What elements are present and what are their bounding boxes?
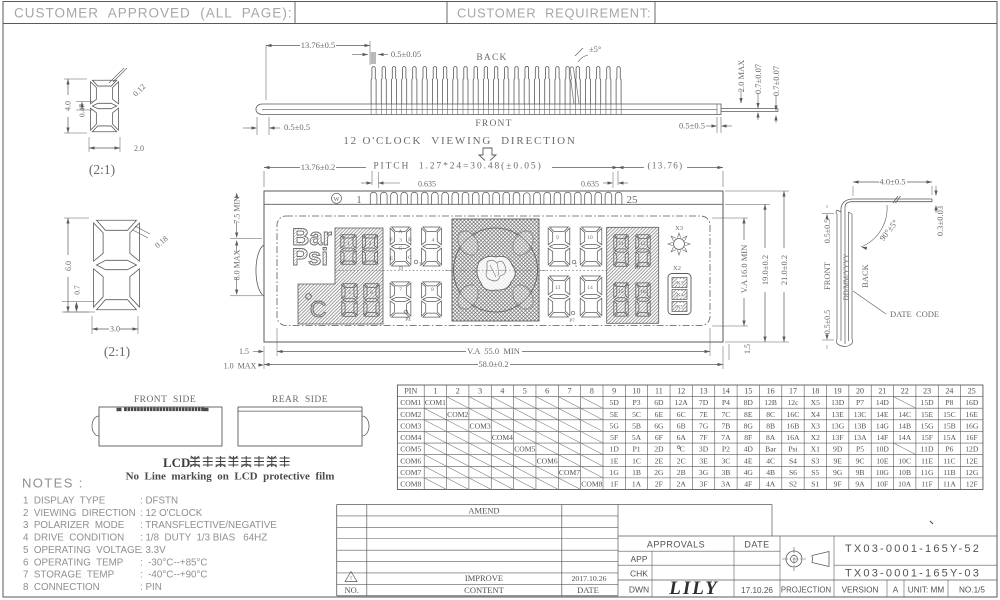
svg-text:12E: 12E [966, 456, 979, 465]
svg-text:P4: P4 [722, 398, 730, 407]
svg-text:21: 21 [878, 387, 886, 396]
svg-text:COM2: COM2 [447, 410, 468, 419]
svg-text:8B: 8B [766, 421, 775, 430]
svg-text:24: 24 [945, 387, 953, 396]
svg-text:NO.: NO. [344, 585, 358, 595]
svg-text:8E: 8E [744, 410, 753, 419]
svg-text:8A: 8A [766, 433, 776, 442]
svg-text:3F: 3F [700, 479, 708, 488]
svg-text:16F: 16F [966, 433, 978, 442]
svg-text:12 O'CLOCK VIEWING DIRECTION: 12 O'CLOCK VIEWING DIRECTION [343, 135, 576, 147]
svg-text:P2: P2 [722, 445, 730, 454]
svg-text:F: F [390, 237, 393, 243]
svg-text:25: 25 [968, 387, 976, 396]
svg-text:3G: 3G [699, 468, 709, 477]
svg-text:5C: 5C [632, 410, 641, 419]
svg-text:P5: P5 [856, 445, 864, 454]
svg-text:8.0 MAX: 8.0 MAX [233, 249, 242, 280]
svg-text:TX03-0001-165Y-03: TX03-0001-165Y-03 [845, 568, 981, 580]
svg-text:: -40°C--+90°C: : -40°C--+90°C [140, 570, 207, 581]
svg-text:8: 8 [431, 287, 434, 293]
svg-text:2D: 2D [654, 445, 664, 454]
svg-text:C: C [680, 445, 685, 454]
svg-text:13B: 13B [854, 421, 867, 430]
svg-text:S3: S3 [811, 456, 819, 465]
svg-text:14C: 14C [898, 410, 911, 419]
svg-text:6D: 6D [654, 398, 664, 407]
svg-text:7C: 7C [721, 410, 730, 419]
svg-text:S5: S5 [811, 468, 819, 477]
svg-text:8 CONNECTION: 8 CONNECTION [23, 582, 100, 593]
svg-text:APP: APP [630, 554, 647, 564]
svg-text:0.5±0.05: 0.5±0.05 [391, 49, 421, 59]
svg-text:: TRANSFLECTIVE/NEGATIVE: : TRANSFLECTIVE/NEGATIVE [140, 520, 277, 531]
svg-text:13.76±0.2: 13.76±0.2 [301, 162, 335, 172]
svg-text:5G: 5G [610, 421, 620, 430]
svg-text:6B: 6B [677, 421, 686, 430]
svg-text:1B: 1B [632, 468, 641, 477]
svg-text:COM1: COM1 [400, 398, 421, 407]
svg-text:BACK: BACK [860, 263, 870, 287]
svg-text:13A: 13A [853, 433, 867, 442]
svg-text:(2:1): (2:1) [89, 162, 115, 177]
svg-text:COM7: COM7 [559, 468, 580, 477]
svg-text:14G: 14G [876, 421, 890, 430]
svg-text:±5°: ±5° [589, 44, 601, 54]
svg-text:6G: 6G [654, 421, 664, 430]
svg-text:5F: 5F [610, 433, 618, 442]
svg-text:AMEND: AMEND [468, 506, 499, 516]
svg-text:PIN: PIN [404, 387, 417, 396]
svg-text:CHK: CHK [630, 569, 648, 579]
svg-text:1E: 1E [610, 456, 619, 465]
svg-text:4B: 4B [766, 468, 775, 477]
svg-text:19.0±0.2: 19.0±0.2 [760, 255, 770, 285]
svg-text:LILY: LILY [668, 578, 719, 599]
svg-text:4D: 4D [744, 445, 754, 454]
svg-text:0.5±0.5: 0.5±0.5 [679, 121, 705, 131]
svg-text:11G: 11G [921, 468, 934, 477]
svg-text:6E: 6E [655, 410, 664, 419]
svg-text:COM8: COM8 [581, 479, 602, 488]
svg-text:4C: 4C [766, 456, 775, 465]
svg-text:9: 9 [612, 387, 616, 396]
svg-text:8C: 8C [766, 410, 775, 419]
svg-text:FRONT: FRONT [822, 261, 832, 290]
svg-text:1D: 1D [610, 445, 620, 454]
svg-text:11D: 11D [921, 445, 934, 454]
svg-text:10C: 10C [898, 456, 911, 465]
svg-text:15B: 15B [943, 421, 956, 430]
svg-text:NO.1/5: NO.1/5 [959, 586, 985, 595]
svg-text:APPROVALS: APPROVALS [647, 540, 705, 550]
svg-text:0.5±0.5: 0.5±0.5 [823, 219, 832, 243]
svg-text:P7: P7 [569, 319, 575, 324]
svg-text:10D: 10D [876, 445, 890, 454]
svg-text:1C: 1C [632, 456, 641, 465]
svg-text:16E: 16E [966, 410, 979, 419]
svg-text:1.5: 1.5 [239, 347, 249, 356]
svg-text:C: C [408, 255, 412, 261]
svg-text:16: 16 [641, 290, 647, 295]
svg-text:8D: 8D [744, 398, 754, 407]
svg-text:3: 3 [478, 387, 482, 396]
svg-text:0.5±0.5: 0.5±0.5 [284, 122, 310, 132]
svg-text:0.7±0.07: 0.7±0.07 [771, 66, 781, 96]
svg-text:X2: X2 [673, 265, 681, 272]
svg-text:DATE: DATE [744, 540, 769, 550]
svg-text:7F: 7F [700, 433, 708, 442]
svg-text:VERSION: VERSION [842, 586, 879, 595]
svg-text:4.0: 4.0 [64, 101, 73, 111]
svg-text:Bar: Bar [765, 445, 776, 454]
svg-text:15G: 15G [921, 421, 935, 430]
svg-text:12: 12 [641, 242, 647, 247]
svg-text:4.0±0.5: 4.0±0.5 [880, 177, 906, 187]
svg-text:P3: P3 [633, 398, 641, 407]
svg-text:2G: 2G [654, 468, 664, 477]
svg-text:2B: 2B [677, 468, 686, 477]
svg-text:13.76±0.5: 13.76±0.5 [301, 40, 335, 50]
svg-text:4: 4 [500, 387, 504, 396]
svg-text:BACK: BACK [476, 53, 507, 63]
svg-text:9G: 9G [833, 468, 843, 477]
svg-text:58.0±0.2: 58.0±0.2 [478, 359, 508, 369]
svg-text:COM8: COM8 [400, 479, 421, 488]
svg-text:DATE CODE: DATE CODE [890, 309, 939, 319]
svg-text:: 3.3V: : 3.3V [140, 545, 166, 556]
svg-text:!: ! [350, 576, 352, 582]
svg-text:: 1/8 DUTY 1/3 BIAS 64HZ: : 1/8 DUTY 1/3 BIAS 64HZ [140, 533, 267, 544]
svg-text:13G: 13G [831, 421, 845, 430]
svg-text:: PIN: : PIN [140, 582, 162, 593]
svg-text:1A: 1A [632, 479, 642, 488]
svg-text:No Line marking on LCD pr: No Line marking on LCD protective film [126, 471, 335, 483]
svg-text:7: 7 [399, 287, 402, 293]
svg-text:1: 1 [433, 387, 437, 396]
svg-text:FRONT: FRONT [475, 119, 512, 129]
svg-text:COM1: COM1 [425, 398, 446, 407]
svg-text:5: 5 [523, 387, 527, 396]
svg-text:8G: 8G [744, 421, 754, 430]
svg-text:COM3: COM3 [470, 421, 491, 430]
svg-text:NOTES :: NOTES : [22, 476, 84, 491]
svg-text:Psi: Psi [292, 244, 328, 271]
svg-text:3B: 3B [721, 468, 730, 477]
svg-text:2.0 MAX: 2.0 MAX [736, 60, 746, 93]
svg-text:12c: 12c [787, 398, 799, 407]
svg-text:S6: S6 [789, 468, 797, 477]
svg-text:LCD: LCD [163, 455, 190, 470]
svg-text:W: W [333, 196, 340, 203]
svg-text:19: 19 [834, 387, 842, 396]
svg-text:X5: X5 [811, 398, 820, 407]
svg-text:5A: 5A [632, 433, 642, 442]
svg-text:Psi: Psi [788, 445, 797, 454]
svg-text:4G: 4G [744, 468, 754, 477]
svg-text:20: 20 [856, 387, 864, 396]
svg-text:12: 12 [677, 387, 685, 396]
svg-text:5 OPERATING VOLTAGE: 5 OPERATING VOLTAGE [23, 545, 142, 556]
svg-text:11E: 11E [921, 456, 933, 465]
svg-text:2C: 2C [677, 456, 686, 465]
svg-text:15: 15 [619, 290, 625, 295]
svg-text:2 VIEWING DIRECTION: 2 VIEWING DIRECTION [23, 508, 136, 519]
svg-text:0.7: 0.7 [73, 285, 82, 295]
svg-text:K4: K4 [677, 294, 684, 299]
svg-text:X3: X3 [811, 421, 820, 430]
svg-text:14: 14 [587, 285, 593, 291]
svg-text:2017.10.26: 2017.10.26 [571, 574, 606, 583]
svg-text:3C: 3C [721, 456, 730, 465]
svg-text:14D: 14D [876, 398, 890, 407]
svg-text:S1: S1 [811, 479, 819, 488]
svg-text:13: 13 [555, 285, 561, 291]
svg-text:4A: 4A [766, 479, 776, 488]
svg-text:0.5±0.5: 0.5±0.5 [823, 310, 832, 334]
svg-text:14A: 14A [898, 433, 912, 442]
svg-text:COM4: COM4 [400, 433, 421, 442]
svg-text:D: D [399, 266, 403, 272]
svg-text:(2:1): (2:1) [104, 344, 130, 359]
svg-text:15E: 15E [921, 410, 934, 419]
svg-text:0.7±0.07: 0.7±0.07 [753, 64, 763, 94]
svg-text:16C: 16C [787, 410, 800, 419]
svg-text:6A: 6A [677, 433, 687, 442]
svg-text:1 DISPLAY TYPE: 1 DISPLAY TYPE [23, 496, 106, 507]
svg-text:4 DRIVE CONDITION: 4 DRIVE CONDITION [23, 533, 124, 544]
svg-text:P4: P4 [405, 318, 411, 323]
svg-text:9F: 9F [834, 479, 842, 488]
svg-text:PITCH 1.27*24=30.48(±0.05): PITCH 1.27*24=30.48(±0.05) [373, 161, 542, 172]
svg-text:2.0: 2.0 [134, 144, 144, 153]
svg-text:7B: 7B [721, 421, 730, 430]
svg-text:6F: 6F [655, 433, 663, 442]
svg-text:4F: 4F [744, 479, 752, 488]
svg-text:CUSTOMER APPROVED (ALL PAGE: CUSTOMER APPROVED (ALL PAGE): [14, 6, 293, 21]
svg-text:COM2: COM2 [400, 410, 421, 419]
svg-text:B: B [408, 237, 412, 243]
svg-text:15F: 15F [921, 433, 933, 442]
svg-text:15C: 15C [943, 410, 956, 419]
svg-text:P6: P6 [945, 445, 953, 454]
svg-text:S4: S4 [789, 456, 797, 465]
svg-text:10F: 10F [876, 479, 888, 488]
svg-text:6 OPERATING TEMP: 6 OPERATING TEMP [23, 557, 124, 568]
svg-text:1.5: 1.5 [743, 344, 752, 354]
svg-text:3E: 3E [699, 456, 708, 465]
svg-text:CUSTOMER REQUIREMENT:: CUSTOMER REQUIREMENT: [457, 6, 651, 21]
svg-text:7: 7 [567, 387, 571, 396]
svg-text:X2: X2 [811, 433, 820, 442]
svg-text:2E: 2E [655, 456, 664, 465]
svg-text:DATE: DATE [577, 585, 599, 595]
svg-text:3.0: 3.0 [110, 325, 120, 334]
svg-text:8F: 8F [744, 433, 752, 442]
svg-text:P1: P1 [633, 445, 641, 454]
svg-text:12B: 12B [764, 398, 777, 407]
svg-text:9A: 9A [855, 479, 865, 488]
svg-text:DD/MM/YYYY: DD/MM/YYYY [843, 254, 851, 301]
svg-text:17.10.26: 17.10.26 [741, 586, 773, 595]
svg-text:11B: 11B [943, 468, 955, 477]
svg-text:16A: 16A [786, 433, 800, 442]
svg-text:P6: P6 [634, 266, 640, 271]
svg-text:13: 13 [700, 387, 708, 396]
svg-text:UNIT: MM: UNIT: MM [908, 586, 945, 595]
svg-text:14: 14 [722, 387, 730, 396]
svg-text:3 POLARIZER MODE: 3 POLARIZER MODE [23, 520, 125, 531]
svg-text:7A: 7A [721, 433, 731, 442]
svg-text:K3: K3 [677, 282, 684, 287]
svg-text:12A: 12A [675, 398, 689, 407]
svg-text:4: 4 [432, 238, 435, 244]
svg-text:21.0±0.2: 21.0±0.2 [779, 255, 789, 285]
svg-text:P7: P7 [856, 398, 864, 407]
svg-text:(13.76): (13.76) [647, 161, 683, 171]
svg-text:7.5 MIN: 7.5 MIN [233, 196, 242, 224]
svg-text:10: 10 [587, 235, 593, 241]
svg-text:16B: 16B [787, 421, 800, 430]
svg-text:CONTENT: CONTENT [464, 585, 504, 595]
svg-text:13E: 13E [832, 410, 845, 419]
svg-text:TX03-0001-165Y-52: TX03-0001-165Y-52 [845, 543, 981, 555]
svg-text:S2: S2 [789, 479, 797, 488]
svg-text:A: A [399, 229, 403, 235]
svg-text:3D: 3D [699, 445, 709, 454]
svg-text:9E: 9E [833, 456, 842, 465]
svg-text:10E: 10E [876, 456, 889, 465]
svg-text:11: 11 [619, 242, 624, 247]
svg-text:DWN: DWN [629, 585, 649, 595]
svg-text:5B: 5B [632, 421, 641, 430]
svg-text:2: 2 [456, 387, 460, 396]
svg-text:P8: P8 [945, 398, 953, 407]
svg-text:11F: 11F [921, 479, 933, 488]
svg-text:COM5: COM5 [514, 445, 535, 454]
svg-text:25: 25 [627, 194, 639, 206]
svg-text:2F: 2F [655, 479, 663, 488]
svg-text:9C: 9C [856, 456, 865, 465]
svg-text:18: 18 [811, 387, 819, 396]
svg-text:13D: 13D [831, 398, 845, 407]
svg-text:16D: 16D [965, 398, 979, 407]
svg-text:16: 16 [767, 387, 775, 396]
svg-text:: -30°C--+85°C: : -30°C--+85°C [140, 557, 207, 568]
svg-text:15A: 15A [943, 433, 957, 442]
svg-text:22: 22 [901, 387, 909, 396]
svg-text:12F: 12F [966, 479, 978, 488]
svg-text:7 STORAGE TEMP: 7 STORAGE TEMP [23, 570, 115, 581]
svg-text:: 12 O'CLOCK: : 12 O'CLOCK [140, 508, 203, 519]
svg-text:COM7: COM7 [400, 468, 421, 477]
svg-text:COM4: COM4 [492, 433, 513, 442]
svg-text:7D: 7D [699, 398, 709, 407]
svg-text:6: 6 [545, 387, 549, 396]
svg-text:23: 23 [923, 387, 931, 396]
svg-text:1G: 1G [610, 468, 620, 477]
svg-text:K5: K5 [677, 306, 684, 311]
svg-text:G: G [399, 246, 403, 252]
svg-text:15D: 15D [921, 398, 935, 407]
svg-text:14F: 14F [876, 433, 888, 442]
svg-text:10G: 10G [876, 468, 890, 477]
svg-text:V.A 55.0 MIN: V.A 55.0 MIN [467, 346, 520, 356]
svg-text:15: 15 [744, 387, 752, 396]
svg-text:COM3: COM3 [400, 421, 421, 430]
svg-text:11C: 11C [943, 456, 955, 465]
svg-text:0.635: 0.635 [418, 180, 436, 189]
svg-text:A: A [893, 586, 899, 595]
svg-text:1.0 MAX: 1.0 MAX [224, 362, 257, 371]
svg-text:8: 8 [590, 387, 594, 396]
svg-text:X4: X4 [811, 410, 820, 419]
svg-text:0.635: 0.635 [581, 180, 599, 189]
svg-text:12D: 12D [965, 445, 979, 454]
svg-text:FRONT SIDE: FRONT SIDE [134, 395, 196, 405]
svg-text:3A: 3A [721, 479, 731, 488]
svg-text:REAR SIDE: REAR SIDE [272, 395, 328, 405]
svg-text:COM5: COM5 [400, 445, 421, 454]
svg-text:17: 17 [789, 387, 797, 396]
svg-text:1F: 1F [610, 479, 618, 488]
svg-text:4E: 4E [744, 456, 753, 465]
svg-text:V.A 16.0 MIN: V.A 16.0 MIN [739, 245, 749, 294]
svg-text:X3: X3 [675, 225, 683, 232]
svg-text:14B: 14B [898, 421, 911, 430]
svg-text:16G: 16G [965, 421, 979, 430]
svg-text:9: 9 [556, 235, 559, 241]
svg-text:6.0: 6.0 [64, 261, 73, 271]
svg-text:12G: 12G [965, 468, 979, 477]
svg-text:: DFSTN: : DFSTN [140, 496, 178, 507]
svg-text:13C: 13C [854, 410, 867, 419]
svg-text:9B: 9B [856, 468, 865, 477]
svg-text:3: 3 [399, 238, 402, 244]
svg-text:C: C [310, 296, 327, 322]
svg-text:13F: 13F [832, 433, 844, 442]
svg-text:5D: 5D [610, 398, 620, 407]
svg-text:7E: 7E [699, 410, 708, 419]
svg-text:PROJECTION: PROJECTION [781, 586, 831, 595]
svg-text:10: 10 [633, 387, 641, 396]
svg-text:X1: X1 [811, 445, 820, 454]
svg-text:2A: 2A [677, 479, 687, 488]
svg-text:1: 1 [356, 194, 362, 206]
svg-text:9D: 9D [833, 445, 843, 454]
svg-text:10A: 10A [898, 479, 912, 488]
svg-text:6C: 6C [677, 410, 686, 419]
svg-text:5E: 5E [610, 410, 619, 419]
svg-text:COM6: COM6 [537, 456, 558, 465]
svg-text:7G: 7G [699, 421, 709, 430]
svg-text:COM6: COM6 [400, 456, 421, 465]
svg-text:14E: 14E [876, 410, 889, 419]
svg-text:IMPROVE: IMPROVE [465, 573, 503, 583]
svg-text:11: 11 [655, 387, 663, 396]
svg-text:11A: 11A [943, 479, 956, 488]
svg-text:10B: 10B [898, 468, 911, 477]
